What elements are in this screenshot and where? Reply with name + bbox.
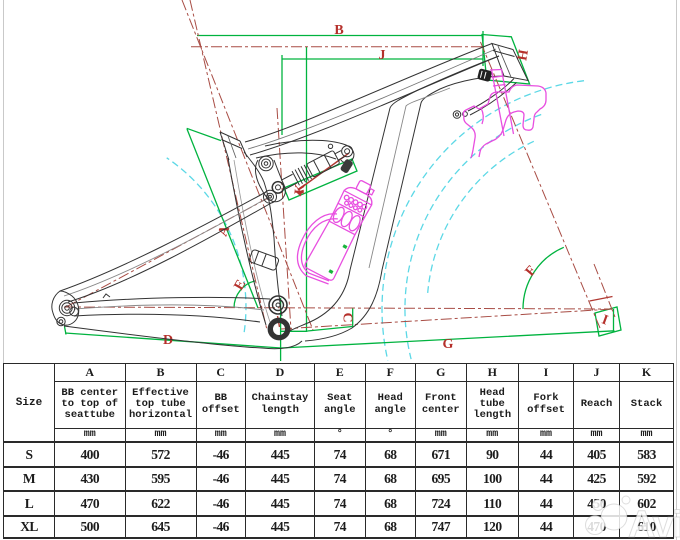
svg-text:F: F bbox=[523, 263, 540, 279]
svg-text:K: K bbox=[293, 183, 309, 195]
svg-text:G: G bbox=[443, 337, 454, 352]
svg-text:Avito: Avito bbox=[628, 504, 680, 540]
svg-text:C: C bbox=[340, 312, 355, 322]
svg-text:D: D bbox=[163, 333, 173, 348]
svg-text:J: J bbox=[379, 48, 386, 63]
svg-text:I: I bbox=[600, 312, 610, 328]
svg-text:B: B bbox=[334, 23, 343, 38]
